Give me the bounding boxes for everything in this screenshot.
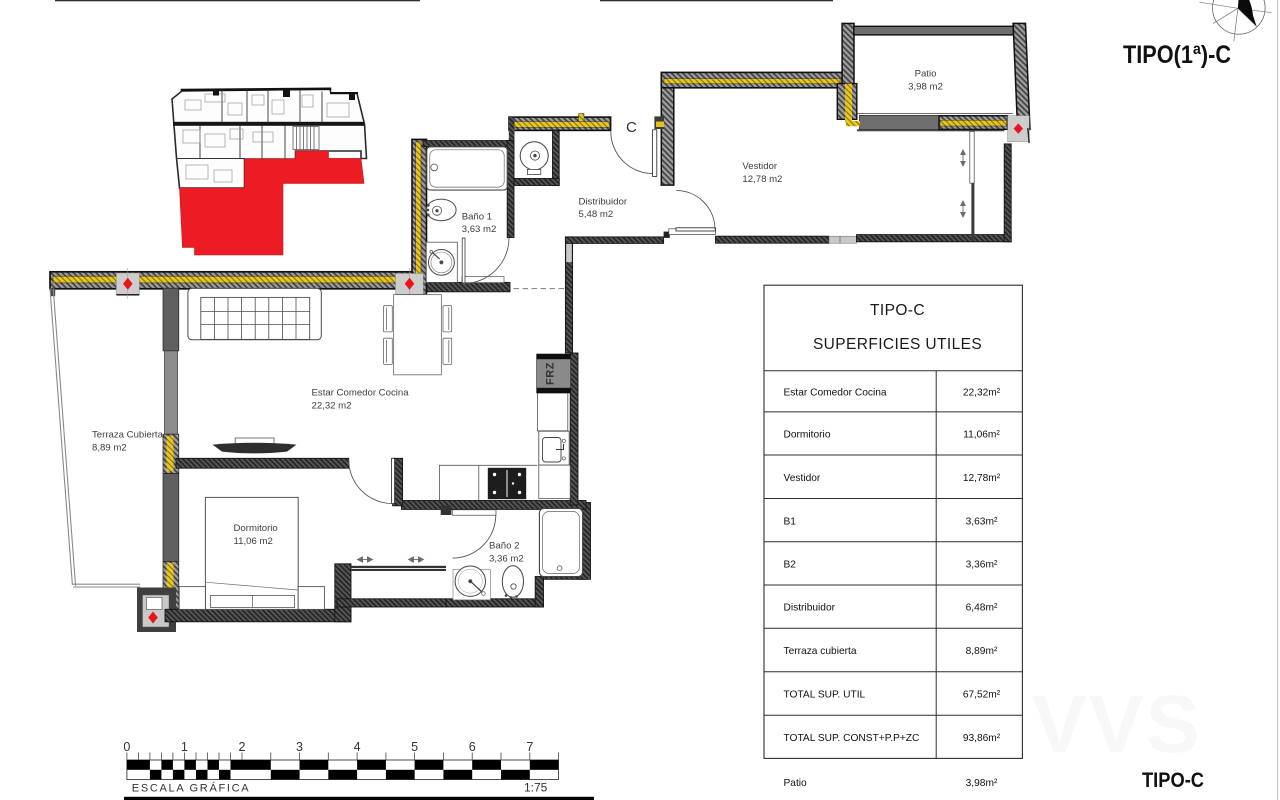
svg-text:12,78m²: 12,78m² [963, 473, 1001, 484]
svg-text:Terraza cubierta: Terraza cubierta [784, 646, 857, 657]
svg-text:6,48m²: 6,48m² [966, 603, 998, 614]
svg-text:B1: B1 [784, 517, 797, 528]
svg-text:ESCALA GRÁFICA: ESCALA GRÁFICA [132, 782, 251, 795]
svg-text:3,36 m2: 3,36 m2 [489, 554, 524, 565]
svg-text:Terraza Cubierta: Terraza Cubierta [92, 430, 164, 441]
svg-text:8,89 m2: 8,89 m2 [92, 443, 127, 454]
svg-text:3,63m²: 3,63m² [966, 517, 998, 528]
svg-text:TOTAL SUP. UTIL: TOTAL SUP. UTIL [784, 690, 866, 701]
svg-text:Estar Comedor Cocina: Estar Comedor Cocina [312, 388, 410, 399]
svg-text:C: C [626, 119, 637, 136]
svg-text:12,78 m2: 12,78 m2 [742, 174, 782, 185]
svg-text:3,98 m2: 3,98 m2 [908, 82, 943, 93]
svg-text:22,32m²: 22,32m² [963, 388, 1001, 399]
svg-text:TIPO(1ª)-C: TIPO(1ª)-C [1123, 41, 1231, 69]
svg-text:Vestidor: Vestidor [742, 161, 777, 172]
svg-text:5: 5 [411, 740, 418, 754]
svg-text:SUPERFICIES UTILES: SUPERFICIES UTILES [813, 336, 982, 353]
svg-text:22,32 m2: 22,32 m2 [312, 401, 352, 412]
svg-text:Baño 2: Baño 2 [489, 541, 519, 552]
svg-text:Vestidor: Vestidor [784, 473, 821, 484]
svg-text:11,06 m2: 11,06 m2 [234, 536, 273, 547]
svg-text:Patio: Patio [784, 778, 808, 789]
svg-text:4: 4 [354, 740, 361, 754]
svg-text:Distribuidor: Distribuidor [784, 603, 836, 614]
svg-text:TIPO-C: TIPO-C [1142, 769, 1204, 792]
svg-text:TOTAL SUP. CONST+P.P+ZC: TOTAL SUP. CONST+P.P+ZC [784, 733, 920, 744]
svg-text:11,06m²: 11,06m² [963, 430, 1000, 441]
svg-text:Estar Comedor Cocina: Estar Comedor Cocina [784, 388, 887, 399]
svg-text:Dormitorio: Dormitorio [784, 430, 831, 441]
svg-text:0: 0 [123, 740, 130, 754]
svg-text:5,48 m2: 5,48 m2 [579, 209, 614, 220]
svg-text:6: 6 [469, 740, 476, 754]
svg-text:B2: B2 [784, 560, 797, 571]
svg-text:8,89m²: 8,89m² [966, 646, 998, 657]
svg-text:3,63 m2: 3,63 m2 [462, 224, 497, 235]
svg-text:1: 1 [181, 740, 188, 754]
svg-text:3,36m²: 3,36m² [966, 560, 998, 571]
svg-text:3: 3 [296, 740, 303, 754]
svg-text:Patio: Patio [915, 69, 937, 80]
svg-text:93,86m²: 93,86m² [963, 733, 1001, 744]
svg-text:Baño 1: Baño 1 [462, 212, 492, 223]
svg-text:FRZ: FRZ [545, 362, 557, 385]
svg-text:1:75: 1:75 [524, 781, 548, 795]
svg-text:Distribuidor: Distribuidor [579, 197, 628, 208]
svg-text:2: 2 [239, 740, 246, 754]
svg-text:7: 7 [526, 740, 533, 754]
svg-text:3,98m²: 3,98m² [966, 778, 998, 789]
svg-text:67,52m²: 67,52m² [963, 690, 1001, 701]
svg-text:Dormitorio: Dormitorio [234, 523, 278, 534]
svg-text:TIPO-C: TIPO-C [870, 302, 925, 319]
svg-text:VVS: VVS [1032, 679, 1202, 770]
